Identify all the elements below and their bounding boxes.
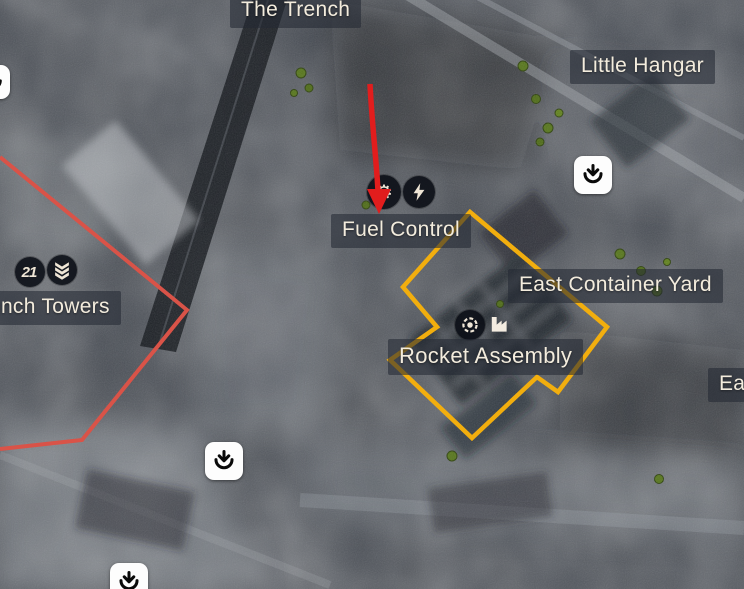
location-label-fuel-control: Fuel Control <box>331 214 471 248</box>
deploy-point-icon[interactable] <box>205 442 243 480</box>
deploy-point-icon[interactable] <box>0 65 10 99</box>
factory-objective-icon[interactable] <box>488 310 514 336</box>
deploy-point-icon[interactable] <box>110 563 148 589</box>
badge-number: 21 <box>22 264 37 281</box>
chevrons-down-icon <box>51 259 73 281</box>
location-label-little-hangar: Little Hangar <box>570 50 715 84</box>
rank-chevrons-icon[interactable] <box>47 255 77 285</box>
location-label-east-container-yard: East Container Yard <box>508 269 723 303</box>
deploy-point-icon[interactable] <box>574 156 612 194</box>
location-label-launch-towers: Launch Towers <box>0 291 121 325</box>
label-text: Little Hangar <box>581 54 704 77</box>
label-text: Rocket Assembly <box>399 343 572 368</box>
map-canvas[interactable]: ⚙ 21 The Trench <box>0 0 744 589</box>
location-label-east-cutoff: Ea <box>708 368 744 402</box>
factory-icon <box>488 310 514 336</box>
intel-objective-icon[interactable] <box>455 310 485 340</box>
location-label-rocket-assembly: Rocket Assembly <box>388 339 583 375</box>
insertion-arrow-icon <box>580 162 606 188</box>
label-text: Launch Towers <box>0 295 110 318</box>
insertion-arrow-icon <box>211 448 237 474</box>
gear-objective-icon[interactable]: ⚙ <box>367 175 401 209</box>
label-text: East Container Yard <box>519 273 712 296</box>
insertion-arrow-icon <box>0 70 5 94</box>
numbered-badge-icon[interactable]: 21 <box>15 257 45 287</box>
eye-icon <box>459 314 481 336</box>
gear-glyph: ⚙ <box>375 180 393 205</box>
label-text: Ea <box>719 372 744 395</box>
location-label-the-trench: The Trench <box>230 0 361 28</box>
label-text: The Trench <box>241 0 350 21</box>
lightning-bolt-icon <box>409 181 429 203</box>
lightning-objective-icon[interactable] <box>403 176 435 208</box>
label-text: Fuel Control <box>342 218 460 241</box>
insertion-arrow-icon <box>116 569 142 589</box>
